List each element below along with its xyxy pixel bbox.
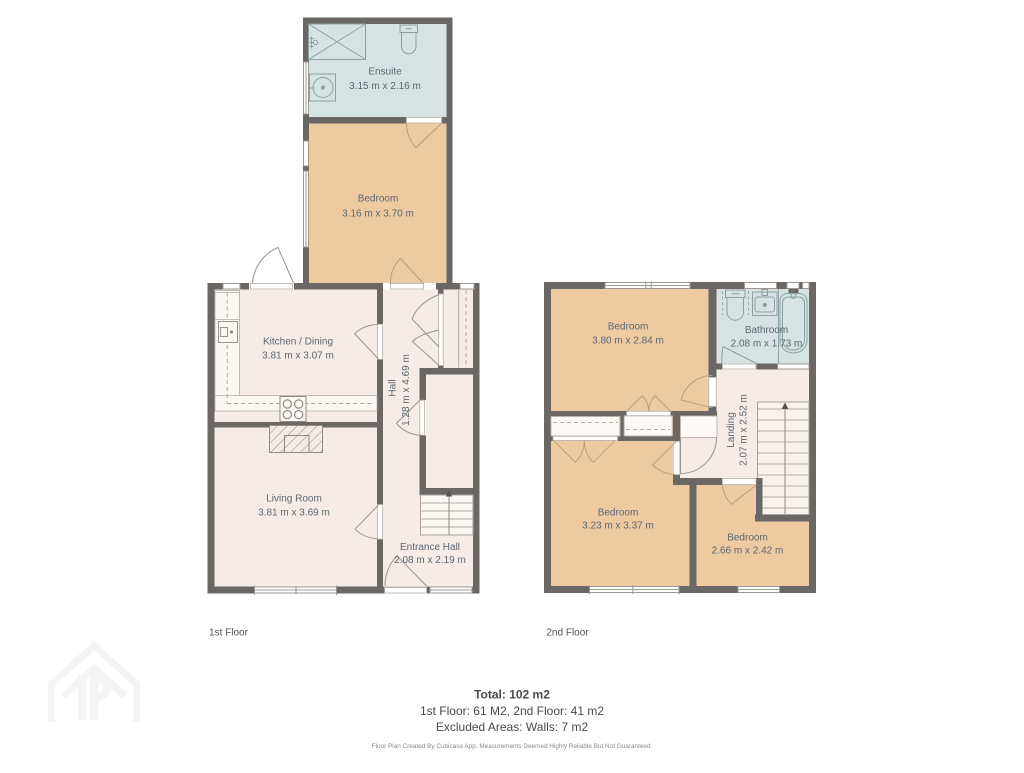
svg-text:1st Floor: 61 M2, 2nd Floor: 4: 1st Floor: 61 M2, 2nd Floor: 41 m2 xyxy=(420,704,604,718)
svg-text:2.08 m x 2.19 m: 2.08 m x 2.19 m xyxy=(394,555,466,566)
svg-text:Hall: Hall xyxy=(388,379,399,396)
svg-text:Floor Plan Created By Cubicasa: Floor Plan Created By Cubicasa App. Meas… xyxy=(372,743,653,750)
svg-text:3.16 m x 3.70 m: 3.16 m x 3.70 m xyxy=(342,209,414,220)
svg-text:2nd Floor: 2nd Floor xyxy=(546,628,589,639)
svg-text:Bedroom: Bedroom xyxy=(608,322,649,333)
svg-text:3.80 m x 2.84 m: 3.80 m x 2.84 m xyxy=(592,336,664,347)
svg-text:Kitchen / Dining: Kitchen / Dining xyxy=(263,337,333,348)
svg-text:3.81 m x 3.07 m: 3.81 m x 3.07 m xyxy=(262,351,334,362)
svg-text:2.08 m x 1.73 m: 2.08 m x 1.73 m xyxy=(731,339,803,350)
svg-text:3.15 m x 2.16 m: 3.15 m x 2.16 m xyxy=(349,81,421,92)
svg-text:Landing: Landing xyxy=(726,412,737,448)
svg-text:1st Floor: 1st Floor xyxy=(209,628,249,639)
svg-text:Bedroom: Bedroom xyxy=(727,533,768,544)
svg-text:2.66 m x 2.42 m: 2.66 m x 2.42 m xyxy=(712,546,784,557)
svg-text:Bedroom: Bedroom xyxy=(598,508,639,519)
svg-text:3.23 m x 3.37 m: 3.23 m x 3.37 m xyxy=(582,521,654,532)
svg-text:3.81 m x 3.69 m: 3.81 m x 3.69 m xyxy=(258,508,330,519)
svg-text:1.28 m x 4.69 m: 1.28 m x 4.69 m xyxy=(401,354,412,426)
svg-text:Ensuite: Ensuite xyxy=(368,67,402,78)
svg-text:2.07 m x 2.52 m: 2.07 m x 2.52 m xyxy=(739,394,750,466)
svg-text:Bathroom: Bathroom xyxy=(745,325,788,336)
svg-text:Excluded Areas: Walls: 7 m2: Excluded Areas: Walls: 7 m2 xyxy=(436,720,589,734)
svg-text:Bedroom: Bedroom xyxy=(358,194,399,205)
svg-text:Entrance Hall: Entrance Hall xyxy=(400,542,460,553)
svg-text:Total: 102 m2: Total: 102 m2 xyxy=(474,688,550,702)
svg-text:Living Room: Living Room xyxy=(266,494,322,505)
